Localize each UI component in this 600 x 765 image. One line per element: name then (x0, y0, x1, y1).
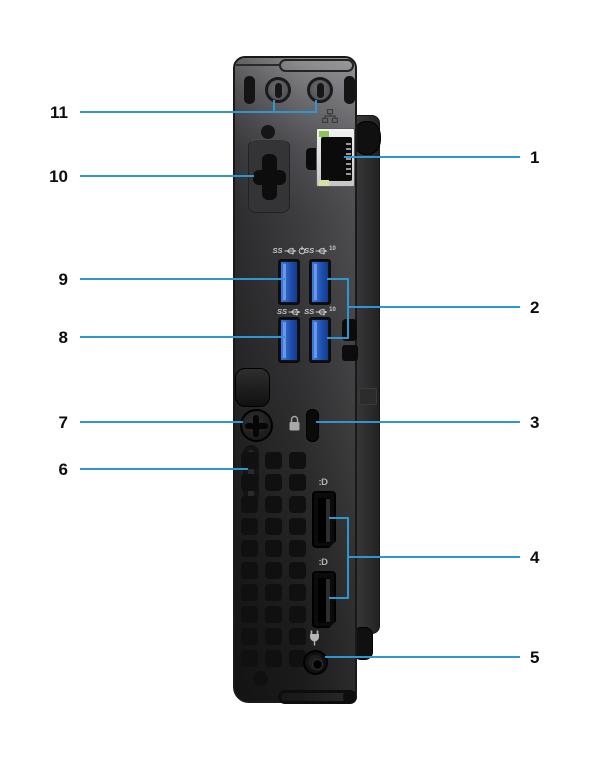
callout-line-8 (80, 336, 285, 338)
vent-hole (289, 584, 306, 601)
right-edge-slot (342, 345, 358, 361)
optional-port-plate (248, 139, 290, 213)
side-latch-detail (359, 388, 377, 405)
screw-hole (261, 125, 275, 139)
callout-label-7: 7 (28, 413, 68, 433)
computer-rear-panel: SS SS 10 SS (233, 56, 357, 703)
power-plug-icon (308, 630, 321, 646)
callout-line-11-stub (315, 100, 317, 113)
vent-hole (265, 452, 282, 469)
vent-hole (289, 496, 306, 513)
vent-hole (241, 650, 258, 667)
vent-hole (241, 584, 258, 601)
callout-line-4-stub (329, 597, 349, 599)
vent-hole (241, 518, 258, 535)
callout-label-9: 9 (28, 270, 68, 290)
usb-ss-text: SS (304, 246, 314, 255)
vent-hole (265, 650, 282, 667)
callout-label-10: 10 (28, 167, 68, 187)
callout-line-3 (316, 421, 520, 423)
usb-port-2 (309, 259, 331, 305)
usb-ss-text: SS (277, 307, 287, 316)
callout-label-8: 8 (28, 328, 68, 348)
callout-label-1: 1 (530, 148, 570, 168)
usb-port-3 (278, 317, 300, 363)
callout-line-4-stub (329, 517, 349, 519)
power-connector (303, 650, 328, 675)
callout-line-9 (80, 278, 285, 280)
vent-hole (265, 540, 282, 557)
thumbscrew (240, 409, 273, 442)
displayport-logo: :D (308, 477, 338, 488)
callout-line-7 (80, 421, 243, 423)
vent-hole (289, 452, 306, 469)
ethernet-opening (321, 137, 352, 181)
usb-badge-10gbps: SS 10 (298, 245, 342, 256)
bottom-handle-slot-end (343, 690, 357, 704)
vent-hole (265, 584, 282, 601)
callout-line-4-bracket (347, 517, 349, 599)
kensington-lock-icon (288, 415, 301, 432)
vent-hole (241, 474, 258, 491)
optional-port-cutout-h (253, 170, 286, 185)
callout-label-4: 4 (530, 548, 570, 568)
usb-ss-trident-icon (315, 308, 328, 316)
vent-hole (241, 562, 258, 579)
usb-ss-text: SS (272, 246, 282, 255)
usb-port-1 (278, 259, 300, 305)
top-slot-left (244, 76, 255, 104)
callout-line-2-stub (327, 337, 349, 339)
ethernet-led-amber (319, 180, 329, 186)
vent-hole (241, 628, 258, 645)
callout-line-4 (347, 556, 520, 558)
usb-ss-trident-icon (284, 247, 297, 255)
vent-hole (289, 474, 306, 491)
ethernet-side-tab (306, 148, 316, 170)
security-cable-slot (306, 409, 319, 442)
cover-seam (236, 64, 280, 66)
bottom-screw-hole (253, 671, 268, 686)
vent-hole (241, 496, 258, 513)
usb-ss-text: SS (304, 307, 314, 316)
cable-cover-knob (235, 368, 270, 407)
vent-hole (265, 518, 282, 535)
vent-hole (289, 628, 306, 645)
vent-hole (265, 562, 282, 579)
usb-10-text: 10 (329, 307, 336, 313)
vent-hole (265, 496, 282, 513)
callout-line-6 (80, 468, 248, 470)
vent-hole (241, 540, 258, 557)
vent-hole (265, 474, 282, 491)
callout-line-2-stub (327, 278, 349, 280)
rear-view-diagram: SS SS 10 SS (0, 0, 600, 765)
usb-10-text: 10 (329, 246, 336, 252)
antenna-mount-1 (265, 77, 291, 103)
vent-hole (241, 452, 258, 469)
vent-hole (289, 562, 306, 579)
callout-label-11: 11 (28, 103, 68, 123)
displayport-logo: :D (308, 557, 338, 568)
callout-line-2-bracket (347, 278, 349, 339)
callout-line-1 (344, 156, 520, 158)
callout-label-6: 6 (28, 460, 68, 480)
usb-ss-trident-icon (315, 247, 328, 255)
usb-badge-10gbps: SS 10 (298, 306, 342, 317)
vent-hole (289, 518, 306, 535)
vent-grid (241, 452, 306, 667)
callout-line-10 (80, 175, 254, 177)
vent-hole (265, 606, 282, 623)
antenna-mount-2 (307, 77, 333, 103)
network-icon (322, 109, 338, 123)
vent-hole (265, 628, 282, 645)
displayport-2 (312, 571, 336, 628)
callout-label-5: 5 (530, 648, 570, 668)
vent-hole (289, 540, 306, 557)
callout-line-11 (80, 111, 317, 113)
displayport-1 (312, 491, 336, 548)
side-screw-knob (353, 121, 381, 155)
top-cover-tab (279, 59, 354, 72)
vent-hole (241, 606, 258, 623)
callout-line-5 (325, 656, 520, 658)
callout-label-3: 3 (530, 413, 570, 433)
top-slot-right (344, 76, 355, 104)
callout-line-2 (347, 306, 520, 308)
usb-port-4 (309, 317, 331, 363)
callout-line-11-stub (273, 100, 275, 113)
callout-label-2: 2 (530, 298, 570, 318)
vent-hole (289, 606, 306, 623)
ethernet-pins (346, 143, 351, 175)
